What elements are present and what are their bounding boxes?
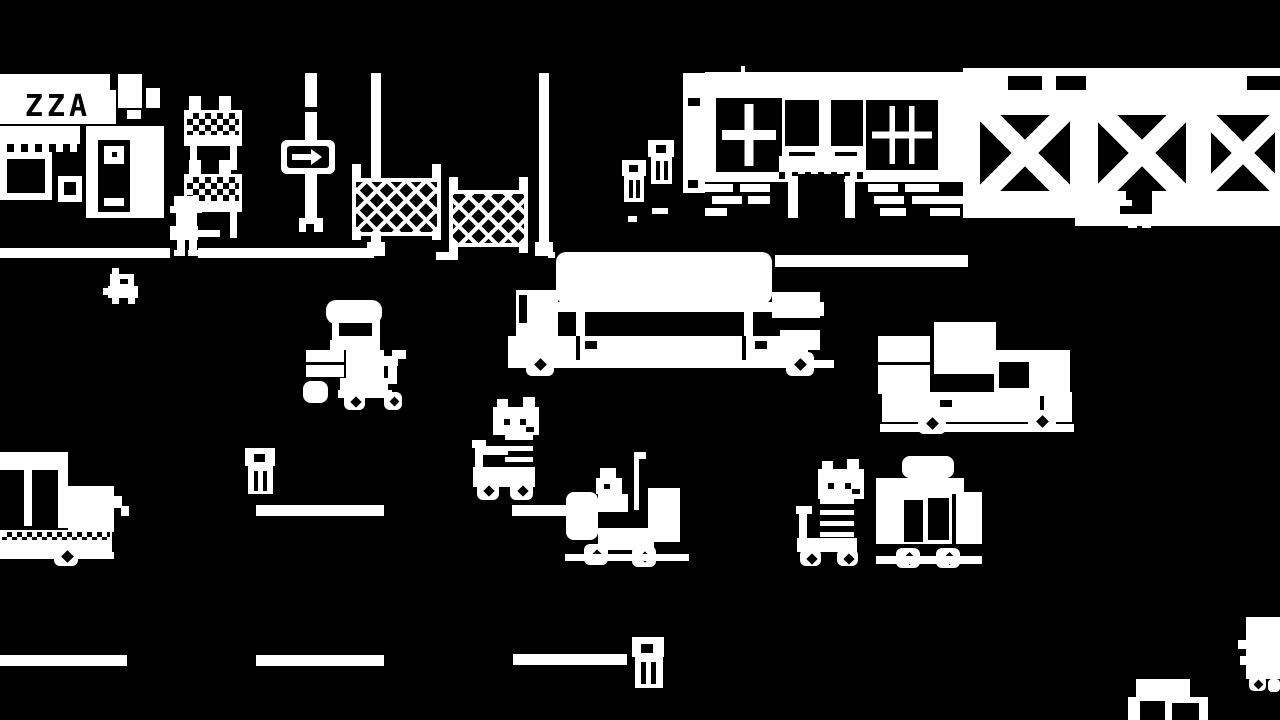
player-delivery-scooter[interactable] [0, 0, 1280, 720]
player-delivery-scooter-part [306, 362, 344, 365]
player-delivery-scooter-part [392, 350, 406, 359]
game-viewport[interactable]: ZZA [0, 0, 1280, 720]
player-delivery-scooter-part [303, 381, 328, 403]
player-delivery-scooter-part [339, 323, 372, 336]
player-delivery-scooter-part [330, 340, 380, 350]
player-delivery-scooter-part [388, 360, 397, 384]
